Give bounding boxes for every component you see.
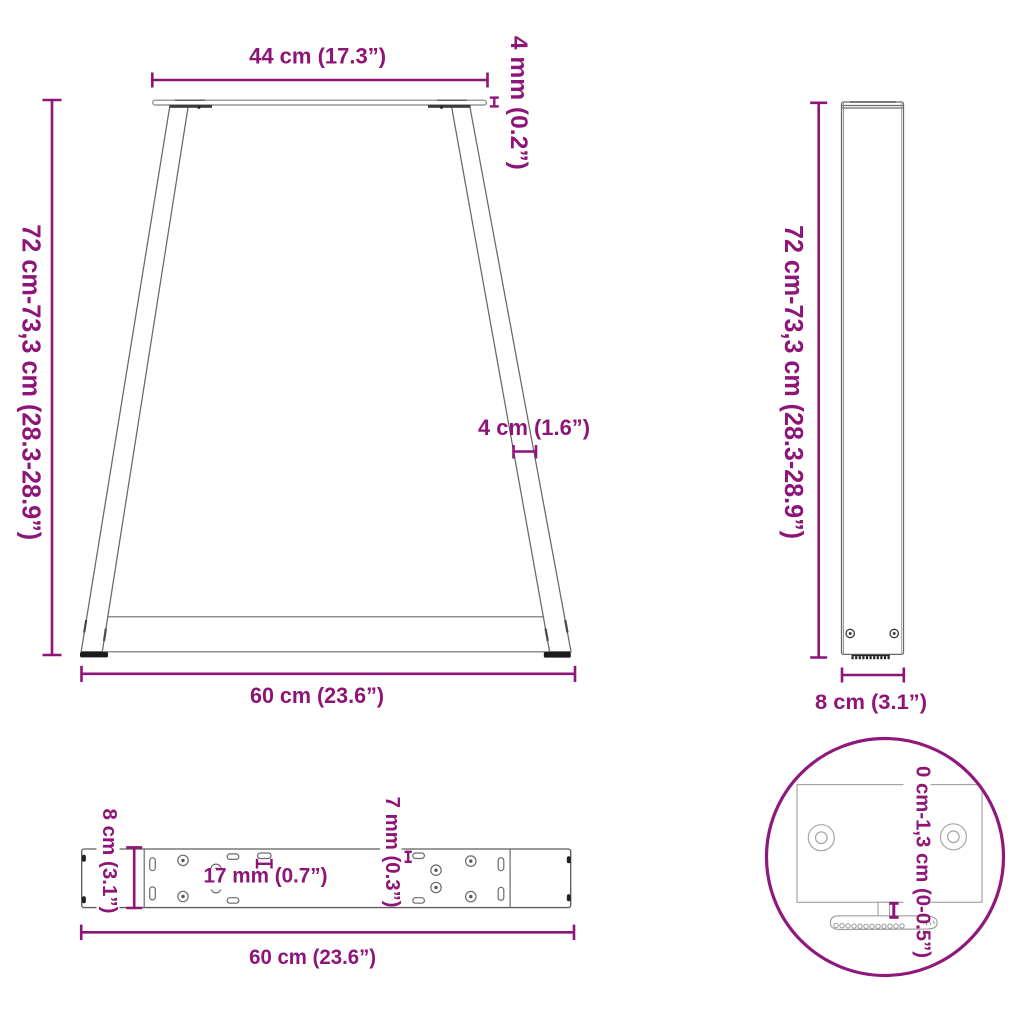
svg-text:8 cm (3.1”): 8 cm (3.1”) [98,809,121,914]
svg-text:0 cm-1,3 cm (0-0.5”): 0 cm-1,3 cm (0-0.5”) [911,766,934,958]
svg-text:4 cm (1.6”): 4 cm (1.6”) [478,415,590,440]
svg-text:17 mm (0.7”): 17 mm (0.7”) [204,865,328,888]
svg-text:72 cm-73,3 cm (28.3-28.9”): 72 cm-73,3 cm (28.3-28.9”) [16,224,44,540]
svg-text:4 mm (0.2”): 4 mm (0.2”) [505,36,532,170]
svg-text:7 mm (0.3”): 7 mm (0.3”) [381,797,404,908]
svg-text:8 cm (3.1”): 8 cm (3.1”) [815,690,927,714]
svg-text:60 cm (23.6”): 60 cm (23.6”) [250,683,384,708]
svg-text:44 cm (17.3”): 44 cm (17.3”) [249,44,386,69]
svg-text:60 cm (23.6”): 60 cm (23.6”) [249,946,376,969]
svg-text:72 cm-73,3 cm (28.3-28.9”): 72 cm-73,3 cm (28.3-28.9”) [779,225,807,539]
